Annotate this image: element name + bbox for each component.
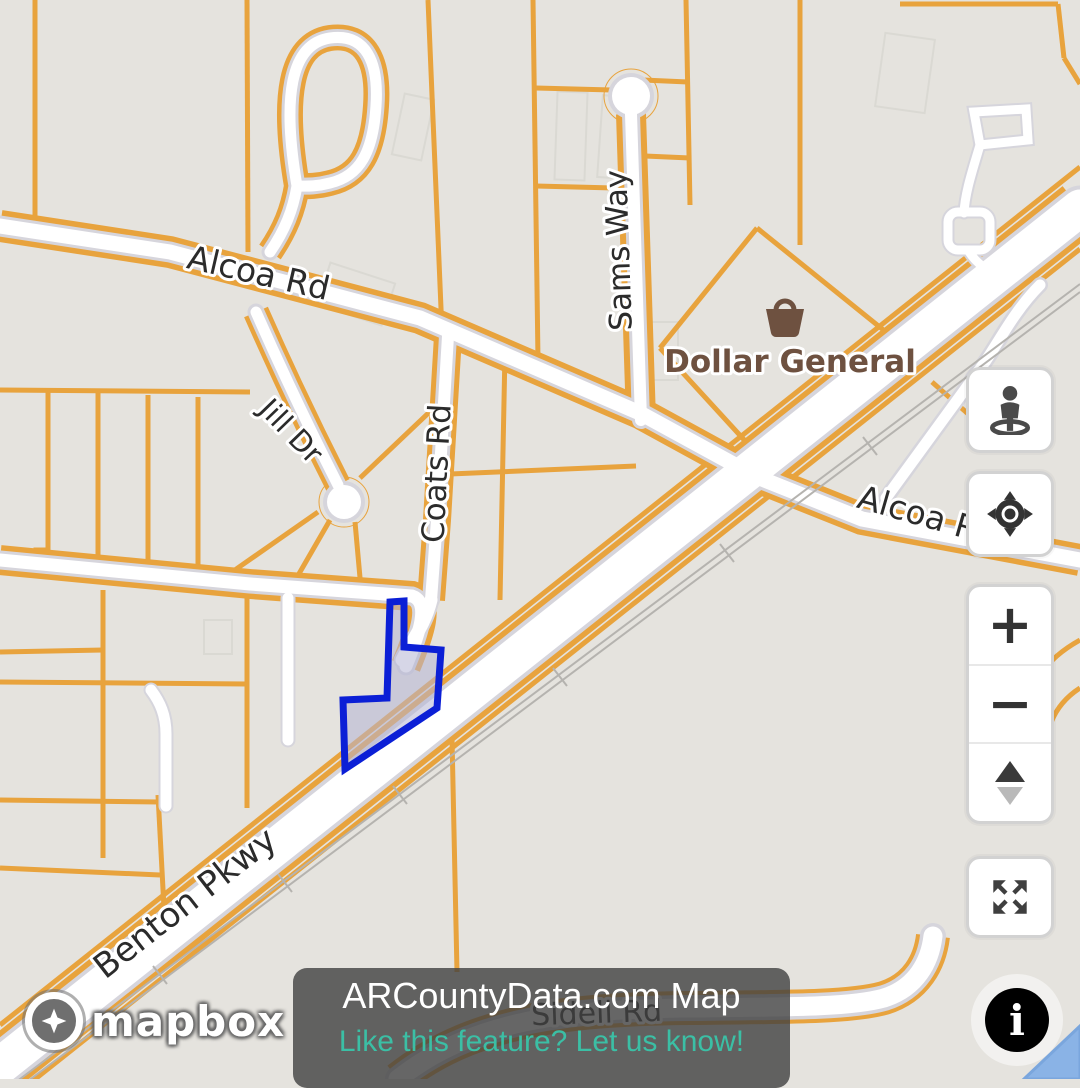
mapbox-logo-icon	[25, 992, 83, 1050]
road-label-sams-way: Sams Way	[598, 169, 640, 331]
geolocate-icon	[986, 490, 1034, 538]
info-button[interactable]: i	[985, 988, 1049, 1052]
map-banner: ARCountyData.com Map Like this feature? …	[293, 968, 790, 1088]
poi-dollar-general-label: Dollar General	[664, 344, 916, 380]
pitch-arrows-icon	[995, 761, 1025, 805]
pitch-toggle-button[interactable]	[969, 742, 1051, 821]
street-view-button[interactable]	[966, 367, 1054, 453]
info-button-halo: i	[971, 974, 1063, 1066]
zoom-in-button[interactable]: +	[969, 587, 1051, 664]
banner-title: ARCountyData.com Map	[293, 975, 790, 1017]
zoom-control-group: + −	[966, 584, 1054, 824]
map-canvas[interactable]: Dollar General Alcoa Rd Alcoa Rd Sams Wa…	[0, 0, 1080, 1079]
mapbox-logo[interactable]: mapbox	[25, 992, 285, 1050]
map-page: { "banner": { "title": "ARCountyData.com…	[0, 0, 1080, 1079]
geolocate-button[interactable]	[966, 471, 1054, 557]
pegman-icon	[987, 385, 1033, 435]
arrow-up-icon	[995, 761, 1025, 782]
arrow-down-icon	[997, 787, 1023, 805]
road-label-coats-rd: Coats Rd	[415, 403, 458, 544]
fullscreen-icon	[986, 873, 1034, 921]
zoom-out-button[interactable]: −	[969, 664, 1051, 743]
mapbox-wordmark: mapbox	[91, 997, 285, 1046]
fullscreen-button[interactable]	[966, 856, 1054, 938]
plus-icon: +	[987, 598, 1032, 652]
banner-feedback-link[interactable]: Like this feature? Let us know!	[293, 1025, 790, 1059]
mapbox-star-icon	[37, 1004, 71, 1038]
minus-icon: −	[987, 677, 1032, 731]
